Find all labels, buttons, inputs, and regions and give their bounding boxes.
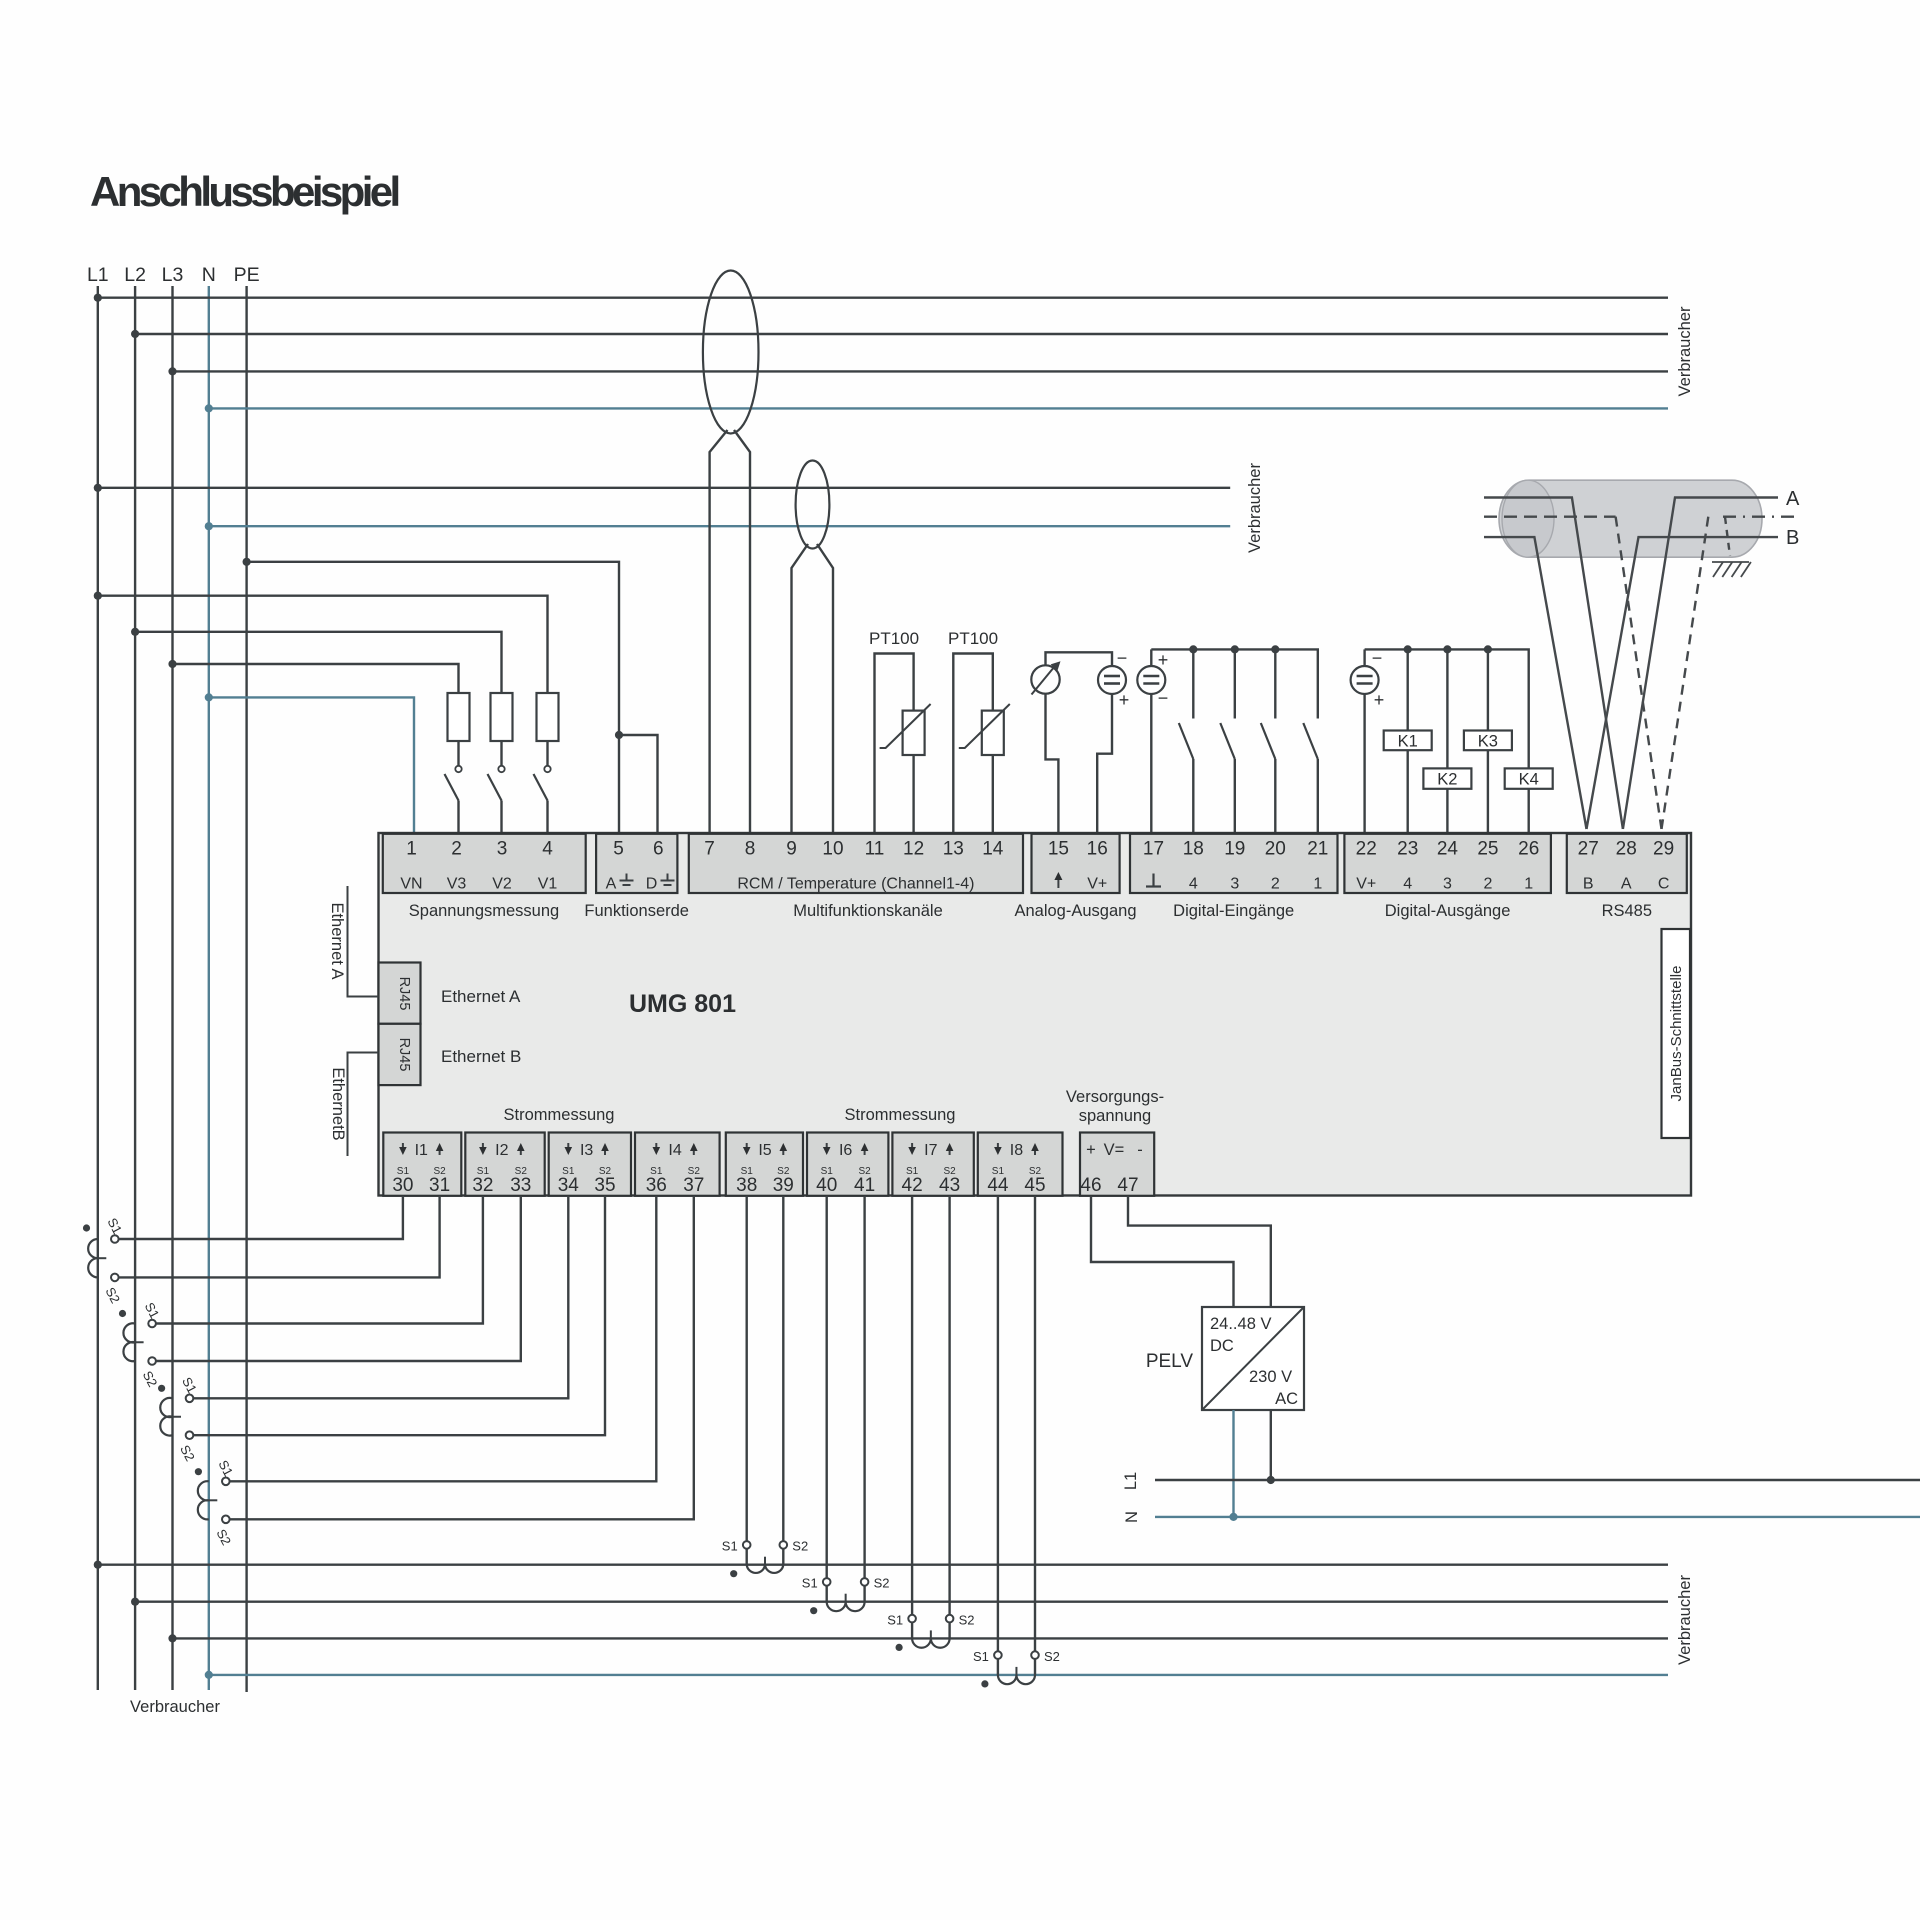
svg-text:230 V: 230 V <box>1249 1368 1292 1386</box>
svg-text:4: 4 <box>1189 876 1198 893</box>
svg-text:45: 45 <box>1024 1175 1045 1196</box>
svg-text:1: 1 <box>1313 876 1322 893</box>
svg-text:Ethernet B: Ethernet B <box>441 1047 521 1066</box>
svg-text:12: 12 <box>903 839 924 860</box>
svg-text:JanBus-Schnittstelle: JanBus-Schnittstelle <box>1668 966 1685 1102</box>
svg-text:43: 43 <box>939 1175 960 1196</box>
svg-text:S1: S1 <box>722 1539 738 1554</box>
svg-text:28: 28 <box>1616 839 1637 860</box>
svg-text:31: 31 <box>429 1175 450 1196</box>
svg-text:7: 7 <box>704 839 715 860</box>
svg-text:17: 17 <box>1143 839 1164 860</box>
svg-text:L1: L1 <box>87 264 109 286</box>
svg-text:V=: V= <box>1104 1141 1125 1159</box>
svg-text:V+: V+ <box>1087 876 1107 893</box>
svg-text:K4: K4 <box>1519 771 1539 789</box>
svg-text:A: A <box>1621 876 1632 893</box>
svg-text:38: 38 <box>736 1175 757 1196</box>
svg-text:+: + <box>1086 1141 1096 1159</box>
svg-text:2: 2 <box>1483 876 1492 893</box>
svg-text:Digital-Ausgänge: Digital-Ausgänge <box>1385 902 1511 920</box>
svg-text:4: 4 <box>542 839 553 860</box>
svg-text:B: B <box>1786 527 1799 549</box>
svg-text:15: 15 <box>1048 839 1069 860</box>
svg-text:DC: DC <box>1210 1337 1234 1355</box>
svg-text:46: 46 <box>1080 1175 1101 1196</box>
svg-text:2: 2 <box>451 839 462 860</box>
svg-text:S2: S2 <box>1044 1649 1060 1664</box>
svg-text:-: - <box>1137 1141 1143 1159</box>
svg-text:29: 29 <box>1653 839 1674 860</box>
svg-text:RJ45: RJ45 <box>396 1038 412 1072</box>
svg-text:10: 10 <box>822 839 843 860</box>
svg-text:13: 13 <box>943 839 964 860</box>
svg-text:39: 39 <box>773 1175 794 1196</box>
svg-text:L1: L1 <box>1122 1472 1140 1490</box>
svg-text:S2: S2 <box>874 1576 890 1591</box>
svg-text:V1: V1 <box>538 876 558 893</box>
svg-text:−: − <box>1158 688 1169 708</box>
svg-text:Verbraucher: Verbraucher <box>1246 463 1264 553</box>
svg-text:+: + <box>1158 650 1169 670</box>
svg-text:24: 24 <box>1437 839 1459 860</box>
svg-text:30: 30 <box>392 1175 413 1196</box>
svg-text:I6: I6 <box>839 1142 852 1159</box>
svg-text:4: 4 <box>1403 876 1412 893</box>
svg-text:23: 23 <box>1397 839 1418 860</box>
svg-text:EthernetB: EthernetB <box>329 1067 347 1140</box>
svg-text:RJ45: RJ45 <box>396 977 412 1011</box>
svg-text:42: 42 <box>902 1175 923 1196</box>
svg-text:11: 11 <box>865 839 885 860</box>
svg-text:S2: S2 <box>792 1539 808 1554</box>
svg-text:25: 25 <box>1477 839 1498 860</box>
svg-text:8: 8 <box>745 839 756 860</box>
svg-text:47: 47 <box>1117 1175 1138 1196</box>
svg-text:21: 21 <box>1307 839 1328 860</box>
svg-text:27: 27 <box>1578 839 1599 860</box>
svg-text:40: 40 <box>816 1175 837 1196</box>
svg-text:20: 20 <box>1265 839 1286 860</box>
svg-text:Digital-Eingänge: Digital-Eingänge <box>1173 902 1294 920</box>
svg-text:1: 1 <box>1524 876 1533 893</box>
svg-text:−: − <box>1372 648 1383 668</box>
svg-text:Anschlussbeispiel: Anschlussbeispiel <box>90 168 399 215</box>
svg-text:spannung: spannung <box>1079 1107 1152 1125</box>
svg-text:41: 41 <box>854 1175 875 1196</box>
svg-text:A: A <box>606 876 617 893</box>
svg-text:Strommessung: Strommessung <box>845 1106 956 1124</box>
svg-text:L3: L3 <box>162 264 184 286</box>
svg-text:Ethernet A: Ethernet A <box>441 987 521 1006</box>
svg-text:9: 9 <box>786 839 797 860</box>
svg-text:RCM / Temperature (Channel1-4): RCM / Temperature (Channel1-4) <box>737 876 974 893</box>
svg-text:C: C <box>1658 876 1670 893</box>
svg-text:I5: I5 <box>758 1142 771 1159</box>
svg-text:+: + <box>1374 690 1385 710</box>
svg-text:3: 3 <box>497 839 508 860</box>
svg-text:I1: I1 <box>415 1142 428 1159</box>
svg-text:S2: S2 <box>959 1612 975 1627</box>
svg-text:N: N <box>1123 1511 1141 1523</box>
svg-text:32: 32 <box>472 1175 493 1196</box>
svg-text:14: 14 <box>982 839 1004 860</box>
svg-text:K3: K3 <box>1478 732 1498 750</box>
svg-text:Analog-Ausgang: Analog-Ausgang <box>1014 902 1136 920</box>
svg-text:I8: I8 <box>1010 1142 1023 1159</box>
svg-text:44: 44 <box>987 1175 1009 1196</box>
svg-text:33: 33 <box>510 1175 531 1196</box>
svg-text:22: 22 <box>1356 839 1377 860</box>
svg-text:AC: AC <box>1275 1390 1298 1408</box>
svg-text:L2: L2 <box>124 264 146 286</box>
svg-text:I7: I7 <box>924 1142 937 1159</box>
svg-text:24..48 V: 24..48 V <box>1210 1315 1271 1333</box>
svg-text:V2: V2 <box>492 876 512 893</box>
svg-text:1: 1 <box>406 839 417 860</box>
svg-text:UMG 801: UMG 801 <box>629 990 736 1018</box>
svg-text:+: + <box>1119 690 1130 710</box>
svg-text:RS485: RS485 <box>1602 902 1652 920</box>
svg-text:34: 34 <box>558 1175 580 1196</box>
svg-text:B: B <box>1583 876 1594 893</box>
svg-text:Versorgungs-: Versorgungs- <box>1066 1088 1164 1106</box>
svg-text:Verbraucher: Verbraucher <box>130 1698 220 1716</box>
svg-text:V+: V+ <box>1356 876 1376 893</box>
svg-text:16: 16 <box>1087 839 1108 860</box>
svg-text:S1: S1 <box>802 1576 818 1591</box>
svg-text:6: 6 <box>653 839 664 860</box>
svg-text:3: 3 <box>1230 876 1239 893</box>
svg-text:I3: I3 <box>580 1142 593 1159</box>
svg-text:V3: V3 <box>447 876 467 893</box>
svg-text:PELV: PELV <box>1146 1351 1194 1372</box>
svg-text:S1: S1 <box>887 1612 903 1627</box>
svg-text:36: 36 <box>646 1175 667 1196</box>
svg-text:N: N <box>202 264 216 286</box>
svg-text:K1: K1 <box>1398 732 1418 750</box>
svg-text:3: 3 <box>1443 876 1452 893</box>
svg-text:−: − <box>1117 648 1128 668</box>
svg-text:5: 5 <box>613 839 624 860</box>
svg-text:Strommessung: Strommessung <box>504 1106 615 1124</box>
svg-text:Verbraucher: Verbraucher <box>1676 306 1694 396</box>
svg-text:D: D <box>646 876 658 893</box>
svg-text:Funktionserde: Funktionserde <box>584 902 689 920</box>
svg-text:I4: I4 <box>668 1142 681 1159</box>
svg-text:S1: S1 <box>973 1649 989 1664</box>
svg-text:Ethernet A: Ethernet A <box>328 902 346 979</box>
svg-text:35: 35 <box>594 1175 615 1196</box>
svg-text:VN: VN <box>400 876 422 893</box>
svg-text:PE: PE <box>234 264 260 286</box>
svg-text:PT100: PT100 <box>869 629 919 648</box>
svg-text:Multifunktionskanäle: Multifunktionskanäle <box>793 902 943 920</box>
svg-text:26: 26 <box>1518 839 1539 860</box>
svg-text:K2: K2 <box>1437 771 1457 789</box>
svg-text:18: 18 <box>1183 839 1204 860</box>
svg-text:Verbraucher: Verbraucher <box>1676 1575 1694 1665</box>
svg-text:2: 2 <box>1271 876 1280 893</box>
svg-text:37: 37 <box>683 1175 704 1196</box>
svg-text:Spannungsmessung: Spannungsmessung <box>409 902 559 920</box>
svg-text:A: A <box>1786 488 1800 510</box>
svg-text:19: 19 <box>1224 839 1245 860</box>
svg-text:PT100: PT100 <box>948 629 998 648</box>
svg-text:I2: I2 <box>495 1142 508 1159</box>
